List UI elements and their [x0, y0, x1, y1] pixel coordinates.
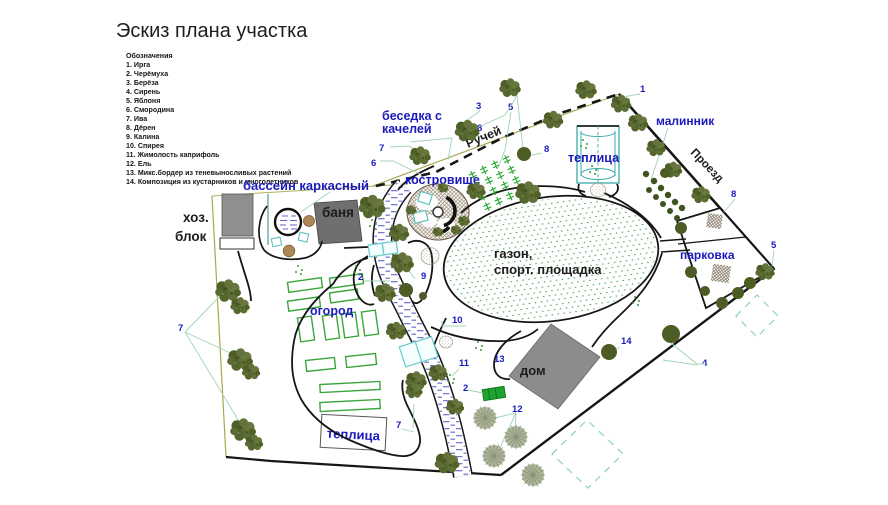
svg-text:дом: дом — [520, 363, 546, 378]
svg-text:9. Калина: 9. Калина — [126, 133, 159, 141]
svg-text:6: 6 — [371, 158, 376, 169]
svg-text:1. Ирга: 1. Ирга — [126, 61, 150, 69]
svg-text:13: 13 — [494, 354, 505, 365]
svg-text:теплица: теплица — [327, 426, 382, 444]
svg-text:8: 8 — [731, 189, 736, 200]
svg-text:8: 8 — [544, 144, 549, 155]
svg-text:9: 9 — [421, 271, 426, 282]
svg-text:1: 1 — [640, 84, 646, 95]
svg-text:6. Смородина: 6. Смородина — [126, 106, 174, 114]
svg-text:теплица: теплица — [568, 151, 620, 165]
svg-text:10. Спирея: 10. Спирея — [126, 142, 164, 150]
svg-text:5: 5 — [771, 240, 777, 251]
svg-text:7. Ива: 7. Ива — [126, 115, 147, 123]
svg-text:газон,: газон, — [494, 246, 532, 261]
svg-text:2: 2 — [463, 383, 468, 394]
svg-text:малинник: малинник — [656, 114, 715, 128]
svg-text:3: 3 — [476, 101, 481, 112]
svg-text:7: 7 — [178, 323, 183, 334]
svg-text:качелей: качелей — [382, 122, 432, 136]
svg-text:2. Черёмуха: 2. Черёмуха — [126, 70, 168, 78]
svg-text:8. Дёрен: 8. Дёрен — [126, 124, 155, 132]
svg-text:12. Ель: 12. Ель — [126, 160, 152, 168]
svg-text:беседка с: беседка с — [382, 109, 442, 123]
svg-text:11: 11 — [459, 358, 470, 369]
svg-text:7: 7 — [379, 143, 384, 154]
svg-text:10: 10 — [452, 315, 463, 326]
svg-text:Обозначения: Обозначения — [126, 52, 173, 60]
svg-text:спорт. площадка: спорт. площадка — [494, 262, 602, 277]
svg-text:парковка: парковка — [680, 248, 735, 262]
svg-text:огород: огород — [310, 304, 353, 318]
svg-text:11. Жимолость каприфоль: 11. Жимолость каприфоль — [126, 151, 220, 159]
svg-text:баня: баня — [322, 205, 354, 220]
svg-text:4: 4 — [702, 358, 708, 369]
svg-text:13. Микс.бордер из теневыносли: 13. Микс.бордер из теневыносливых растен… — [126, 169, 291, 177]
svg-text:Эскиз плана участка: Эскиз плана участка — [116, 20, 308, 42]
svg-text:3. Берёза: 3. Берёза — [126, 79, 159, 87]
svg-text:7: 7 — [396, 420, 401, 431]
svg-text:14: 14 — [621, 336, 632, 347]
svg-text:4. Сирень: 4. Сирень — [126, 88, 161, 96]
svg-text:5: 5 — [508, 102, 514, 113]
svg-text:хоз.: хоз. — [183, 210, 209, 225]
svg-text:5. Яблоня: 5. Яблоня — [126, 97, 160, 105]
svg-text:бассейн каркасный: бассейн каркасный — [243, 178, 369, 193]
svg-text:блок: блок — [175, 229, 207, 244]
